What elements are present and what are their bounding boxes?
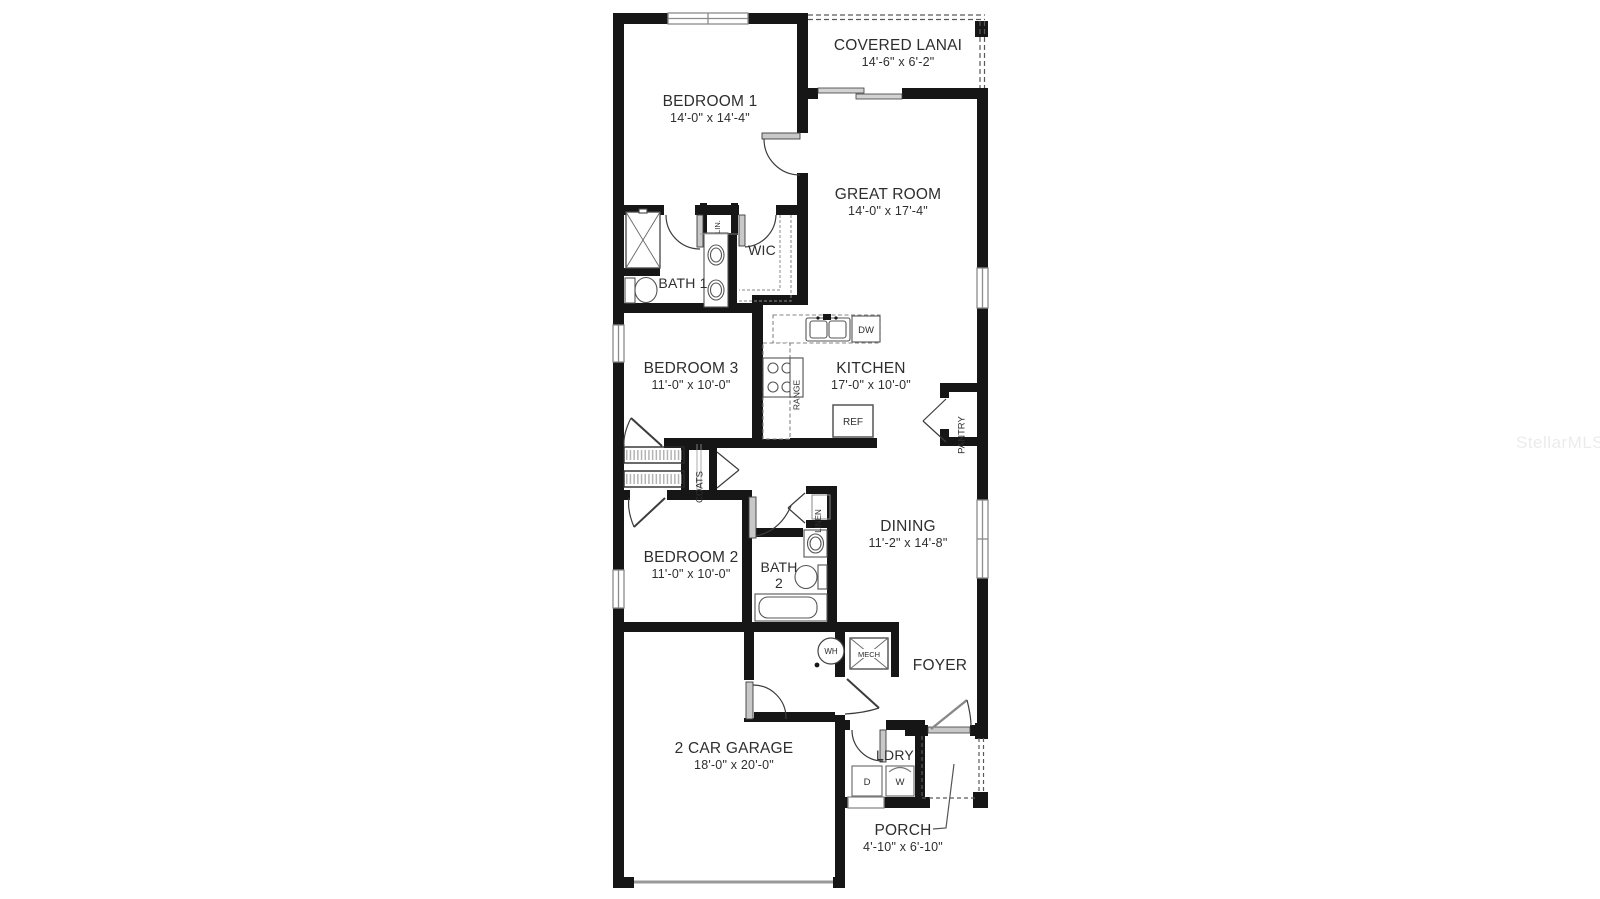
door-leaf-bath2 [749,497,756,538]
bath1-toilet-tank [625,278,635,303]
range-burner-1 [768,363,778,373]
door-leaf-garage-entry [746,682,753,719]
kitchen-faucet-handle-right [834,316,837,319]
door-coats-fold-a [717,452,739,470]
wall-bedroom3-kitchen [752,303,763,448]
bath2-tub-inner [759,597,817,618]
room-label-great-room: GREAT ROOM 14'-0" x 17'-4" [835,186,942,218]
shower-head-icon [639,209,647,213]
wall-vestibule-bottom [744,712,845,722]
bath2-toilet-tank [818,565,827,589]
bedroom3-dims: 11'-0" x 10'-0" [644,378,739,392]
bedroom2-dims: 11'-0" x 10'-0" [644,567,739,581]
room-label-bedroom2: BEDROOM 2 11'-0" x 10'-0" [644,549,739,581]
bedroom2-name: BEDROOM 2 [644,549,739,566]
great-room-name: GREAT ROOM [835,186,942,203]
door-leaf-bedroom2 [634,498,665,527]
foyer-name: FOYER [913,657,967,674]
bath2-name-line1: BATH [760,560,797,576]
wall-left-exterior [613,13,624,888]
bath2-sink-inner [810,537,821,550]
bath1-sink-2-inner [711,283,722,297]
wall-garage-bottom-left [613,877,634,888]
bedroom1-name: BEDROOM 1 [663,93,758,110]
room-label-kitchen: KITCHEN 17'-0" x 10'-0" [831,360,911,392]
bath1-sink-1-inner [711,248,722,262]
wall-shower-ledge [624,268,660,276]
sliding-door-panel-a [818,88,864,93]
floor-plan-page: DW REF RANGE PANTRY COATS LIN. LINEN WH … [0,0,1600,899]
room-label-foyer: FOYER [913,657,967,674]
room-label-garage: 2 CAR GARAGE 18'-0" x 20'-0" [675,740,794,772]
kitchen-faucet-icon [823,314,831,320]
front-door-arc [967,700,971,726]
wall-bath2-right [827,486,837,622]
wall-lin-right [731,203,738,235]
door-arc-bedroom2 [629,498,634,527]
door-pantry-fold-a [923,399,946,421]
room-label-dining: DINING 11'-2" x 14'-8" [869,518,948,550]
kitchen-dims: 17'-0" x 10'-0" [831,378,911,392]
kitchen-sink-bowl-left [810,321,827,338]
dining-name: DINING [869,518,948,535]
bath1-name: BATH 1 [658,276,707,292]
room-label-bath1: BATH 1 [658,276,707,292]
wall-porch-top-block [975,723,988,739]
dishwasher-label: DW [858,325,874,336]
washer-label: W [896,777,905,788]
kitchen-sink-bowl-right [829,321,846,338]
great-room-dims: 14'-0" x 17'-4" [835,204,942,218]
wall-linen-top [806,486,837,494]
dryer-label: D [864,777,871,788]
wall-bedroom2-top-a [613,490,630,500]
front-door-leaf [931,700,967,729]
wall-bath2-top [755,528,803,537]
dining-dims: 11'-2" x 14'-8" [869,536,948,550]
water-heater-label: WH [824,647,838,656]
room-label-wic: WIC [748,243,776,259]
covered-lanai-dims: 14'-6" x 6'-2" [834,55,962,69]
door-leaf-wic [739,215,745,246]
door-linen-fold-b [788,508,805,523]
door-arc-bedroom1 [764,139,800,175]
opening-laundry-door [850,720,886,730]
floor-plan-drawing: DW REF RANGE PANTRY COATS LIN. LINEN WH … [0,0,1600,899]
wall-bath1-bottom [613,303,763,313]
door-leaf-bath1 [697,215,703,247]
wall-wic-left [728,233,737,307]
range-label: RANGE [792,380,802,411]
door-arc-foyer [845,708,879,714]
wic-name: WIC [748,243,776,259]
wall-bedroom1-bottom-c [776,205,808,215]
room-label-porch: PORCH 4'-10" x 6'-10" [863,822,943,854]
wall-pantry-left-a [940,383,949,398]
wall-garage-bottom-right [833,877,845,888]
opening-foyer-door [835,677,845,715]
bath2-name-line2: 2 [760,576,797,592]
lin-label: LIN. [713,220,722,234]
garage-name: 2 CAR GARAGE [675,740,794,757]
bedroom1-dims: 14'-0" x 14'-4" [663,111,758,125]
watermark-text: StellarMLS [1516,433,1600,453]
wall-coats-right [709,443,717,500]
room-label-bedroom1: BEDROOM 1 14'-0" x 14'-4" [663,93,758,125]
wall-porch-bottom-block [973,792,988,808]
room-label-bedroom3: BEDROOM 3 11'-0" x 10'-0" [644,360,739,392]
wall-mech-right [891,632,899,677]
kitchen-name: KITCHEN [831,360,911,377]
bedroom3-name: BEDROOM 3 [644,360,739,377]
wall-laundry-right [915,730,925,800]
window-laundry [848,797,884,808]
door-leaf-foyer [847,679,879,708]
room-label-laundry: LDRY [876,748,914,764]
covered-lanai-name: COVERED LANAI [834,37,962,54]
door-leaf-bedroom1 [762,133,800,139]
laundry-name: LDRY [876,748,914,764]
door-arc-bath1 [666,215,700,249]
front-door-threshold [928,727,970,733]
porch-leader-line [933,764,954,829]
range-burner-2 [768,382,778,392]
kitchen-faucet-handle-left [816,316,819,319]
refrigerator-label: REF [843,417,863,428]
pantry-label: PANTRY [957,416,968,454]
bath1-toilet-icon [635,278,657,303]
door-coats-fold-b [717,470,739,488]
door-linen-fold-a [788,493,805,508]
wall-kitchen-bottom [752,438,877,448]
room-label-covered-lanai: COVERED LANAI 14'-6" x 6'-2" [834,37,962,69]
wall-right-exterior [977,88,988,735]
wall-garage-top [613,622,899,632]
garage-dims: 18'-0" x 20'-0" [675,758,794,772]
hall-shelf-unit-2 [624,471,684,487]
mech-label: MECH [858,650,880,659]
porch-name: PORCH [863,822,943,839]
coats-label: COATS [695,471,706,503]
sliding-door-panel-b [856,94,902,99]
bath2-toilet-icon [795,566,817,589]
opening-bedroom2-door [630,490,667,500]
wall-lanai-corner-block [975,21,988,37]
linen-label: LINEN [814,509,823,533]
porch-dims: 4'-10" x 6'-10" [863,840,943,854]
floor-drain-icon [815,663,820,668]
room-label-bath2: BATH 2 [760,560,797,591]
hall-shelf-unit-1 [624,447,684,463]
